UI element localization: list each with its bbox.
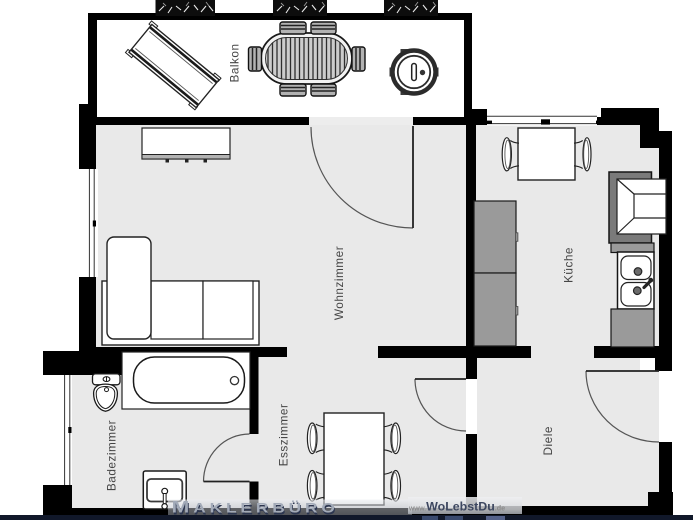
svg-text:Wohnzimmer: Wohnzimmer <box>332 246 346 320</box>
svg-text:Balkon: Balkon <box>228 43 242 82</box>
svg-text:Badezimmer: Badezimmer <box>105 420 119 491</box>
svg-text:Diele: Diele <box>541 426 555 455</box>
svg-text:Esszimmer: Esszimmer <box>277 404 291 467</box>
svg-text:MAKLERBÜRO: MAKLERBÜRO <box>172 499 339 517</box>
svg-text:Küche: Küche <box>562 247 576 283</box>
